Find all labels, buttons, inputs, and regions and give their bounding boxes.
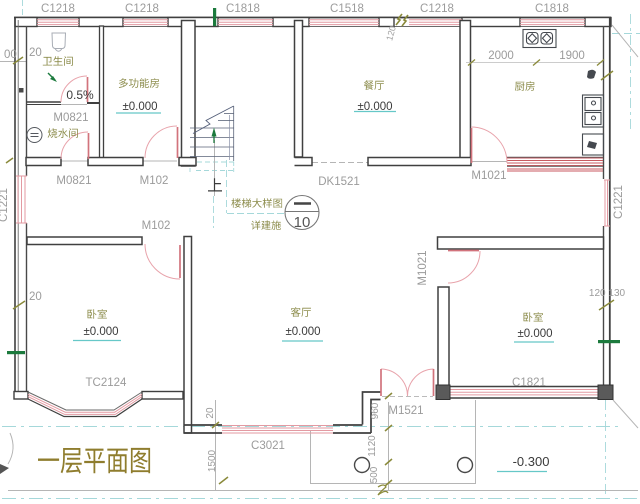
svg-text:C1518: C1518	[330, 3, 364, 15]
svg-text:0.5%: 0.5%	[66, 88, 94, 102]
svg-text:20: 20	[29, 291, 42, 303]
svg-text:C1818: C1818	[535, 3, 569, 15]
svg-text:M102: M102	[142, 220, 171, 232]
svg-text:M1521: M1521	[388, 405, 423, 417]
svg-text:1900: 1900	[559, 50, 585, 62]
svg-text:1500: 1500	[207, 449, 218, 472]
svg-text:C1818: C1818	[226, 3, 260, 15]
svg-text:20: 20	[205, 407, 216, 419]
svg-text:C1218: C1218	[41, 3, 75, 15]
svg-text:10: 10	[294, 214, 311, 231]
svg-text:±0.000: ±0.000	[517, 328, 552, 340]
svg-text:120 130: 120 130	[589, 288, 626, 299]
svg-text:1120: 1120	[367, 435, 378, 457]
svg-text:±0.000: ±0.000	[83, 326, 118, 338]
svg-text:20: 20	[29, 47, 42, 59]
svg-text:C1821: C1821	[512, 377, 546, 389]
svg-text:±0.000: ±0.000	[285, 326, 320, 338]
svg-text:±0.000: ±0.000	[122, 101, 157, 113]
svg-text:C1218: C1218	[125, 3, 159, 15]
svg-text:M0821: M0821	[56, 175, 91, 187]
svg-text:C1218: C1218	[420, 3, 454, 15]
svg-text:±0.000: ±0.000	[357, 101, 392, 113]
svg-text:00: 00	[4, 49, 17, 61]
svg-text:C1221: C1221	[613, 185, 625, 219]
svg-text:TC2124: TC2124	[86, 377, 128, 389]
svg-text:M1021: M1021	[417, 250, 429, 285]
svg-text:M102: M102	[140, 175, 169, 187]
svg-text:-0.300: -0.300	[513, 454, 550, 469]
svg-text:C3021: C3021	[251, 440, 285, 452]
svg-text:DK1521: DK1521	[318, 176, 360, 188]
svg-text:M1021: M1021	[471, 170, 506, 182]
svg-text:500: 500	[369, 466, 380, 483]
svg-text:960: 960	[370, 402, 381, 419]
svg-text:M0821: M0821	[53, 112, 88, 124]
svg-text:2000: 2000	[488, 50, 514, 62]
svg-text:C1221: C1221	[0, 188, 10, 222]
